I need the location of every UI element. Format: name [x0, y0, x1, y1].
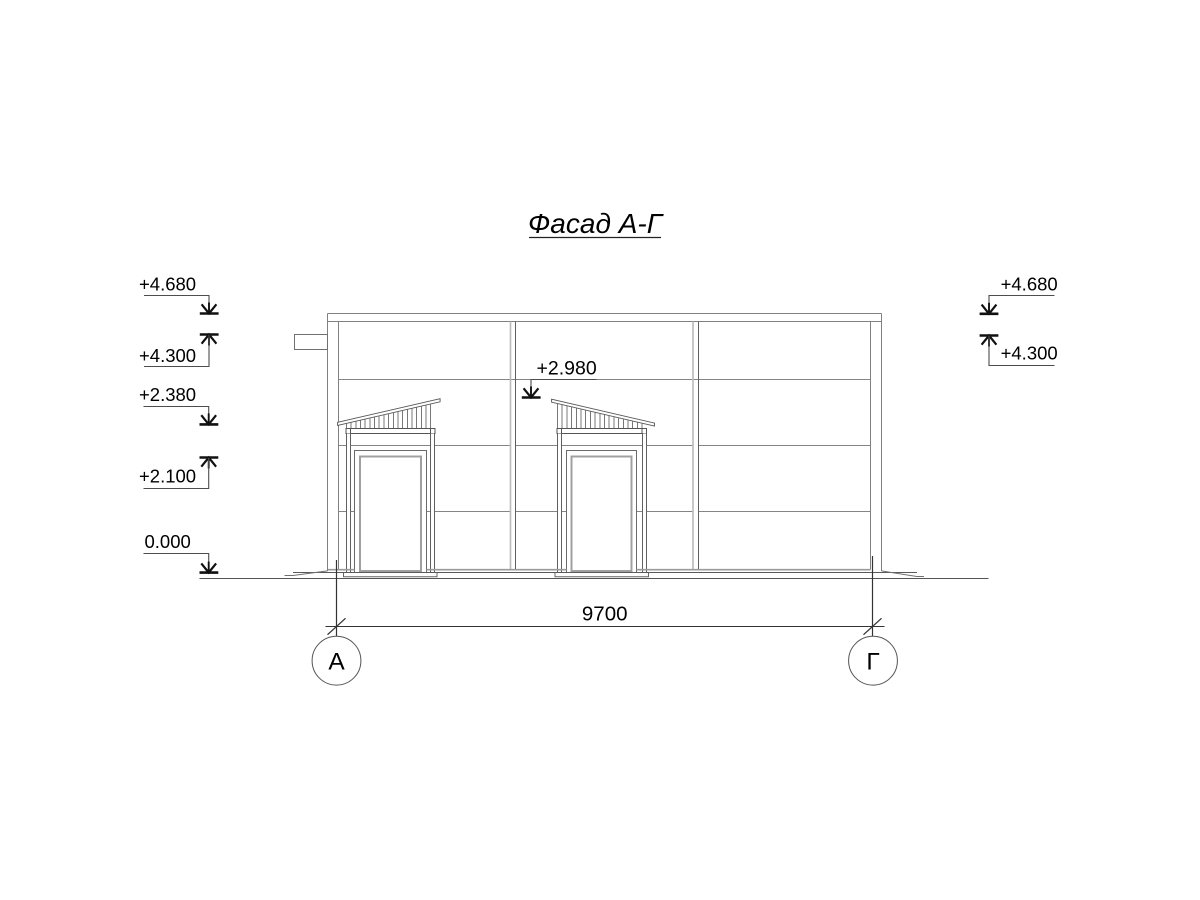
svg-text:+4.680: +4.680 — [1001, 273, 1058, 294]
svg-text:+2.980: +2.980 — [537, 358, 597, 380]
svg-text:+4.300: +4.300 — [1001, 343, 1058, 364]
svg-text:+2.380: +2.380 — [139, 384, 196, 405]
svg-text:+2.100: +2.100 — [139, 466, 196, 487]
svg-text:+4.680: +4.680 — [139, 273, 196, 294]
svg-text:9700: 9700 — [582, 603, 628, 626]
svg-text:А: А — [328, 648, 345, 675]
svg-text:+4.300: +4.300 — [139, 345, 196, 366]
svg-text:Фасад А-Г: Фасад А-Г — [528, 208, 664, 239]
svg-text:0.000: 0.000 — [145, 531, 191, 552]
svg-text:Г: Г — [866, 648, 879, 675]
